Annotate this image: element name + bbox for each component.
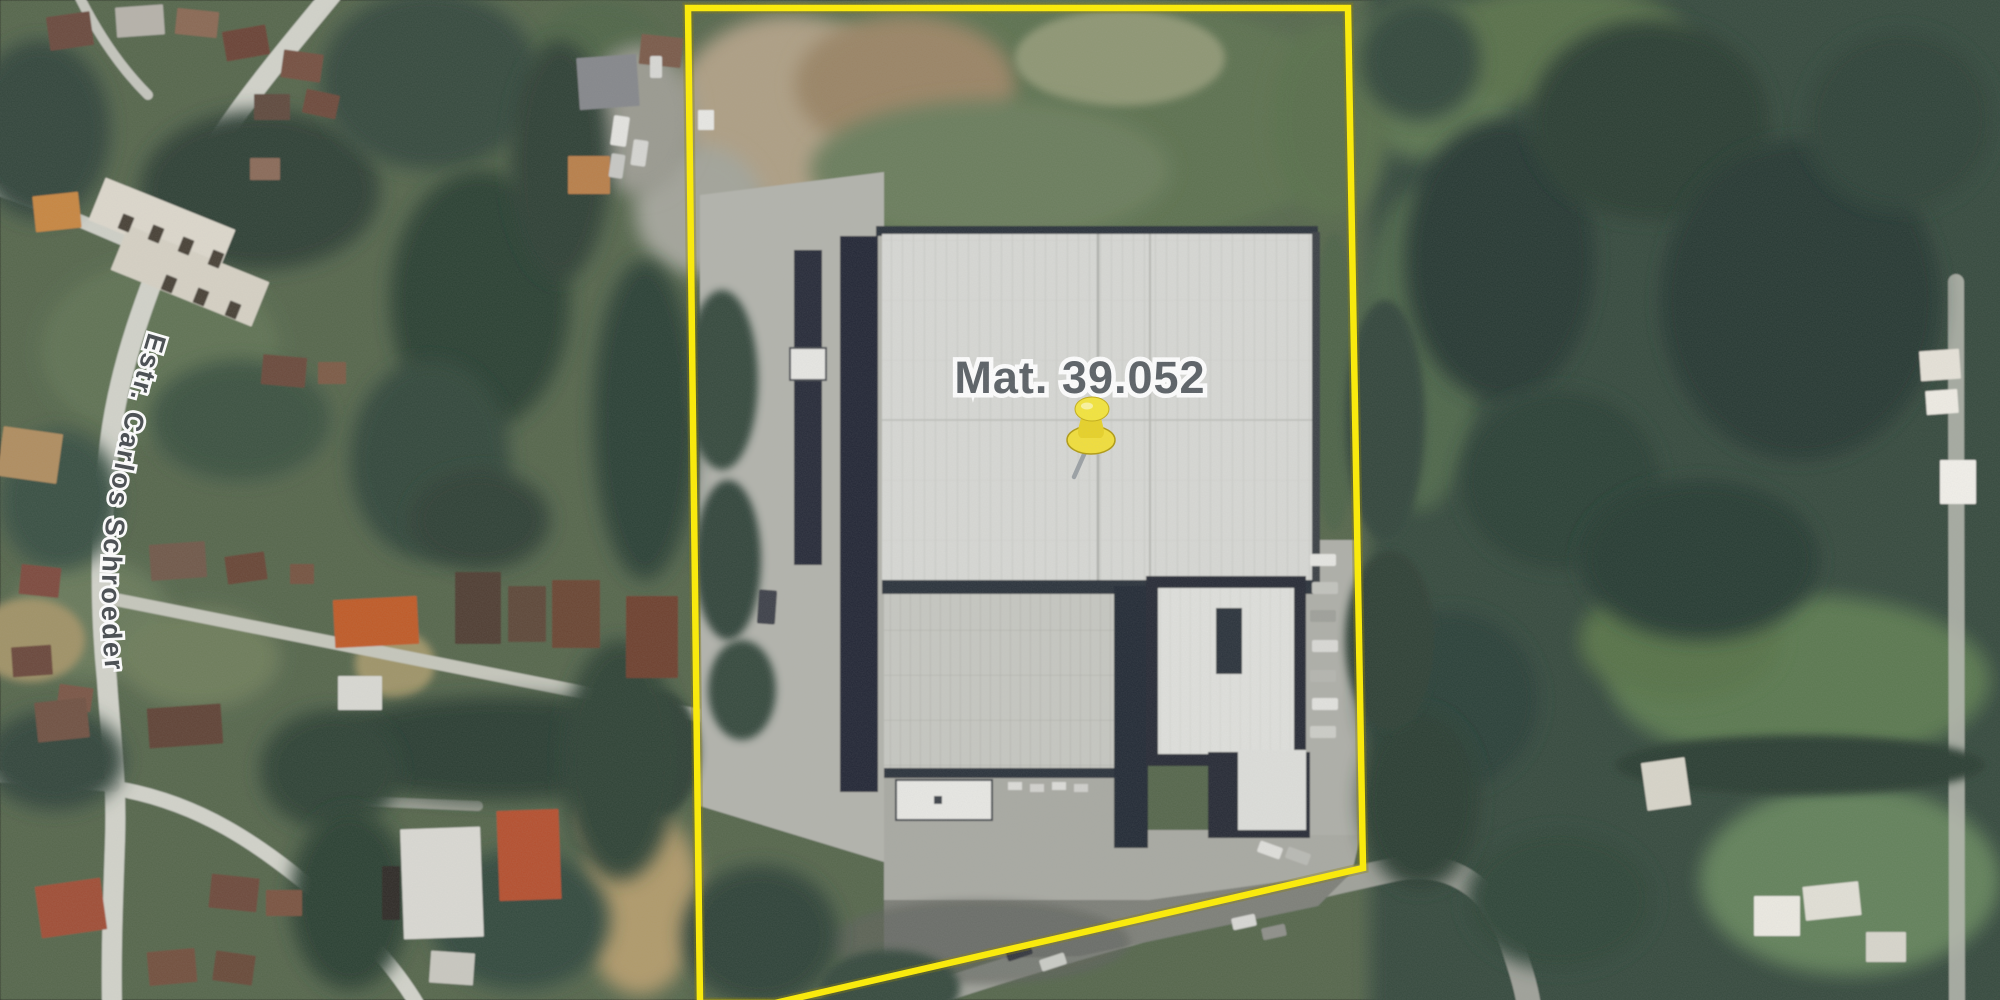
map-canvas[interactable]: Estr. Carlos Schroeder Mat. 39.052	[0, 0, 2000, 1000]
satellite-map[interactable]: Estr. Carlos Schroeder Mat. 39.052	[0, 0, 2000, 1000]
image-grain-overlay	[0, 0, 2000, 1000]
